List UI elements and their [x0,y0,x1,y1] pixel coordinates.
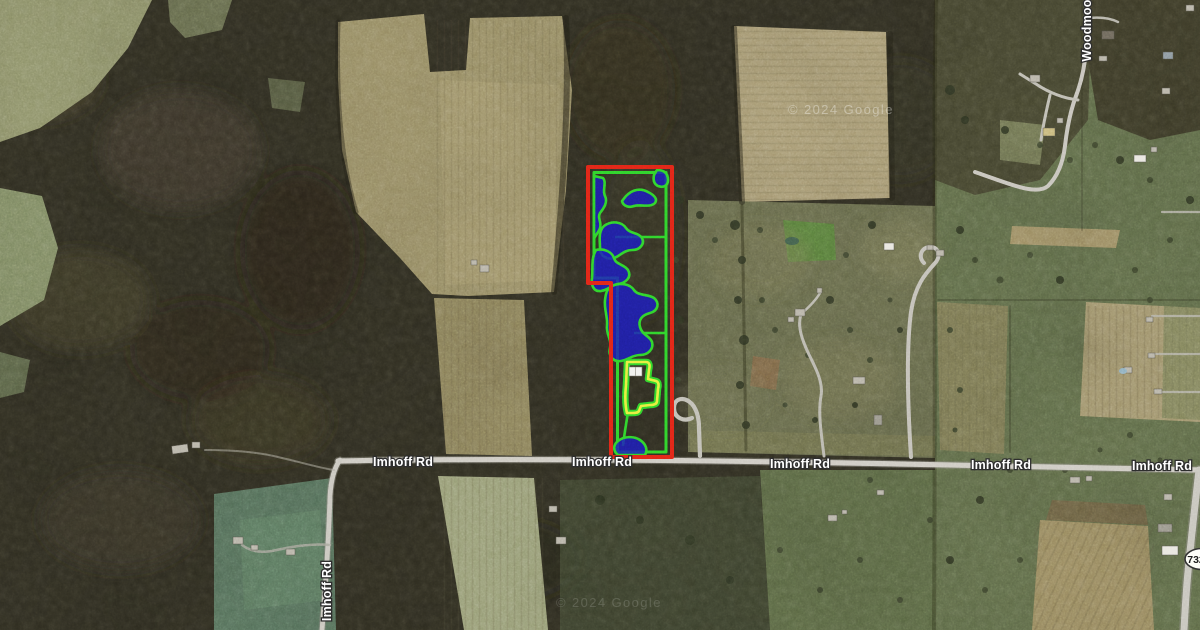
route-shield-number: 732 [1187,554,1200,566]
google-watermark-top: © 2024 Google [788,102,894,117]
road-label-imhoff-2: Imhoff Rd [572,455,632,469]
satellite-map-viewport[interactable]: © 2024 Google © 2024 Google Imhoff Rd Im… [0,0,1200,630]
google-watermark-bottom: © 2024 Google [556,595,662,610]
road-label-imhoff-3: Imhoff Rd [770,457,830,471]
street-label-woodmoor: Woodmoor [1080,0,1094,62]
road-label-imhoff-5: Imhoff Rd [1132,459,1192,473]
satellite-map-canvas[interactable]: © 2024 Google © 2024 Google Imhoff Rd Im… [0,0,1200,630]
road-label-imhoff-1: Imhoff Rd [373,455,433,469]
image-grain-texture [0,0,1200,630]
road-label-imhoff-4: Imhoff Rd [971,458,1031,472]
road-label-imhoff-vertical: Imhoff Rd [320,561,334,621]
